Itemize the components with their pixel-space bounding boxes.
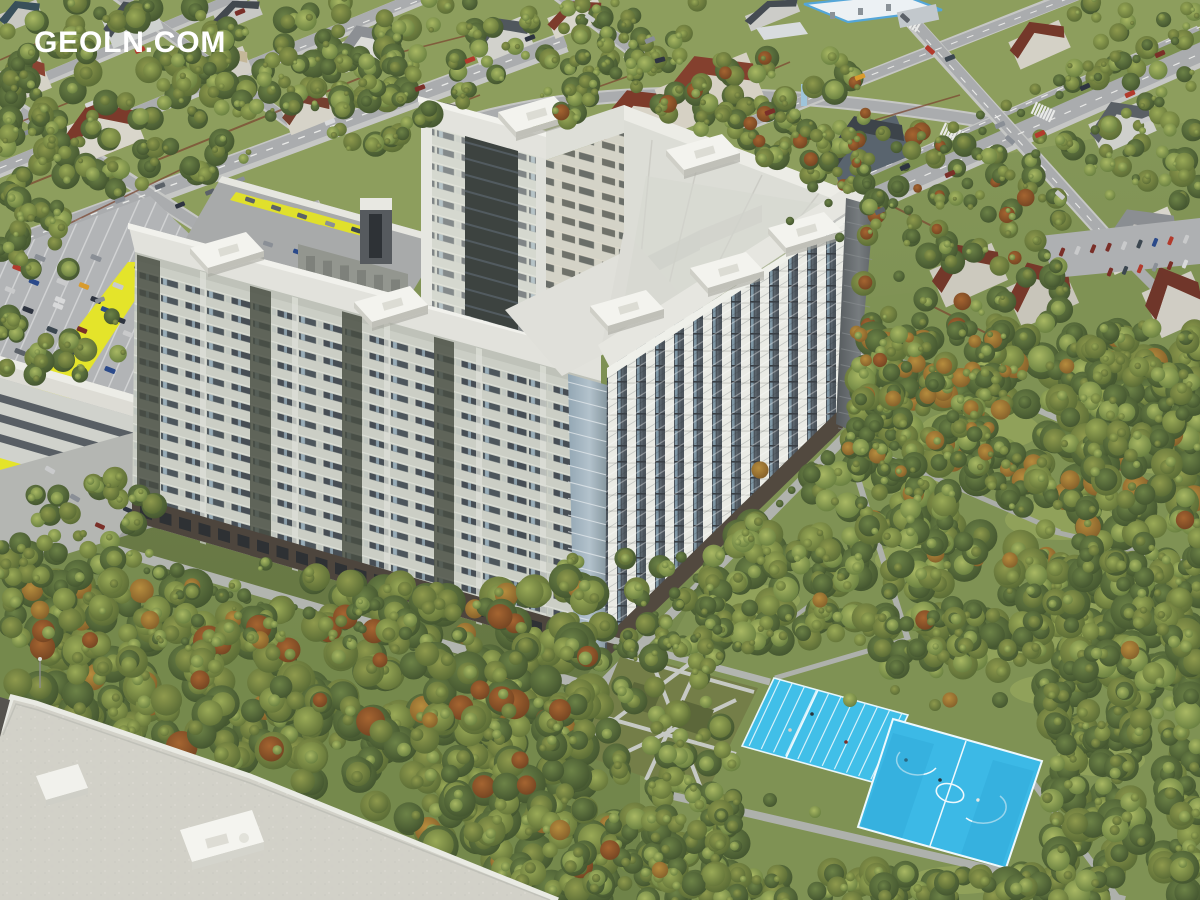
svg-text:GEOLN.COM: GEOLN.COM [34,26,226,59]
